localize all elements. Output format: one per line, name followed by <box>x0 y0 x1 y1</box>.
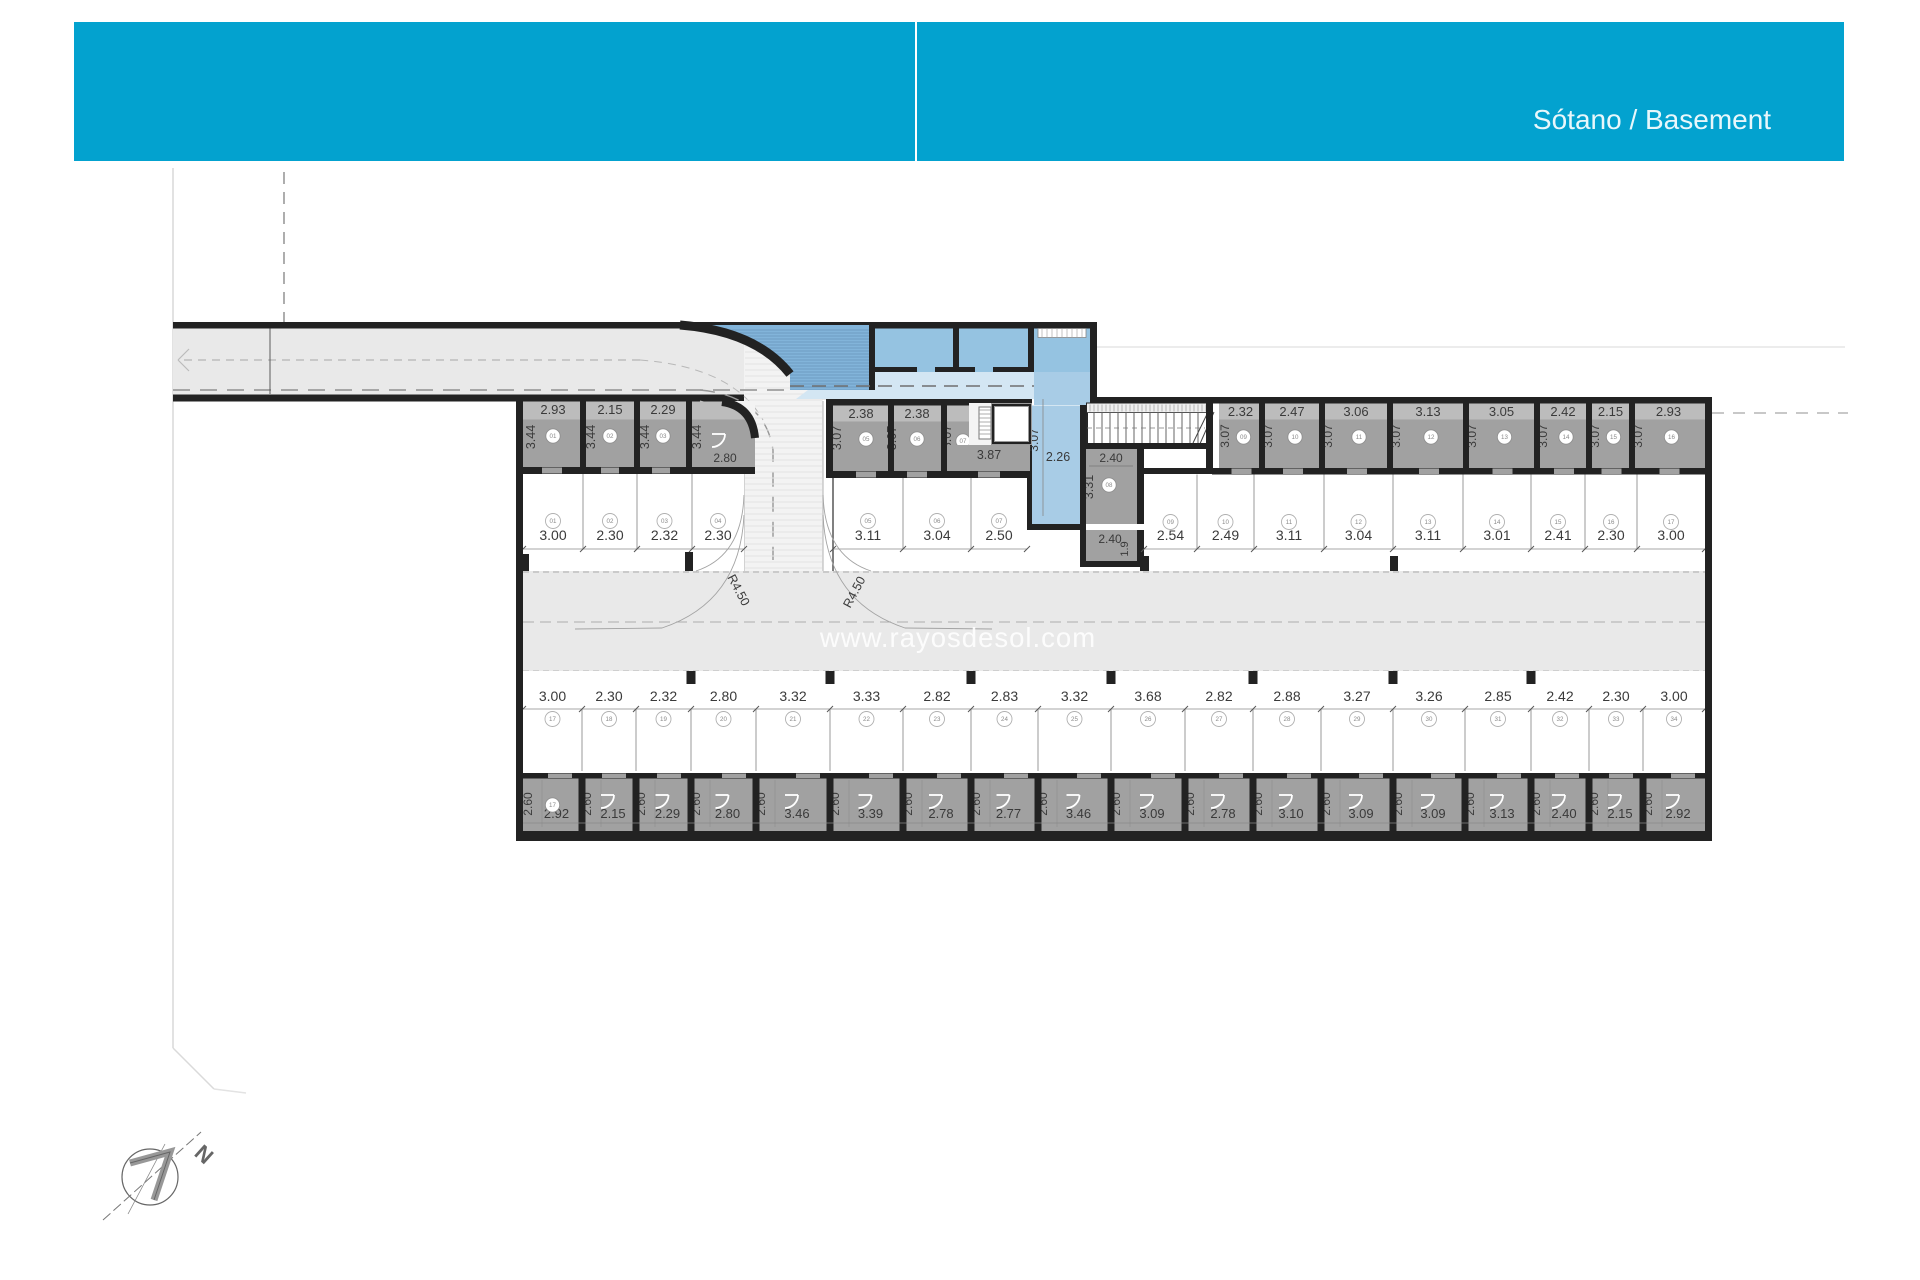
svg-text:2.49: 2.49 <box>1212 527 1239 543</box>
svg-text:03: 03 <box>661 518 668 525</box>
svg-text:3.05: 3.05 <box>1489 404 1514 419</box>
svg-text:25: 25 <box>1071 716 1078 723</box>
svg-text:2.54: 2.54 <box>1157 527 1184 543</box>
svg-text:3.04: 3.04 <box>1345 527 1372 543</box>
svg-text:15: 15 <box>1610 434 1617 441</box>
svg-text:12: 12 <box>1428 434 1435 441</box>
svg-text:2.42: 2.42 <box>1550 404 1575 419</box>
svg-text:2.50: 2.50 <box>985 527 1012 543</box>
svg-text:2.38: 2.38 <box>848 406 873 421</box>
svg-text:2.30: 2.30 <box>704 527 731 543</box>
svg-text:14: 14 <box>1563 434 1570 441</box>
svg-text:17: 17 <box>549 802 556 809</box>
svg-text:04: 04 <box>715 518 722 525</box>
svg-text:34: 34 <box>1671 716 1678 723</box>
svg-text:3.11: 3.11 <box>1415 527 1441 543</box>
svg-text:22: 22 <box>863 716 870 723</box>
svg-text:3.00: 3.00 <box>539 688 566 704</box>
svg-text:3.44: 3.44 <box>690 425 704 449</box>
svg-text:26: 26 <box>1145 716 1152 723</box>
svg-text:2.32: 2.32 <box>1228 404 1253 419</box>
svg-text:2.15: 2.15 <box>1598 404 1623 419</box>
svg-text:07: 07 <box>996 518 1003 525</box>
svg-text:3.87: 3.87 <box>977 448 1001 462</box>
svg-text:2.82: 2.82 <box>923 688 950 704</box>
svg-text:13: 13 <box>1425 519 1432 526</box>
svg-text:05: 05 <box>863 436 870 443</box>
svg-text:08: 08 <box>1106 482 1113 489</box>
svg-text:11: 11 <box>1286 519 1293 526</box>
svg-text:16: 16 <box>1668 434 1675 441</box>
svg-text:Sótano / Basement: Sótano / Basement <box>1533 104 1771 135</box>
svg-text:20: 20 <box>720 716 727 723</box>
svg-text:2.80: 2.80 <box>713 451 737 465</box>
svg-text:3.32: 3.32 <box>1061 688 1088 704</box>
svg-text:19: 19 <box>660 716 667 723</box>
svg-text:2.42: 2.42 <box>1546 688 1573 704</box>
svg-text:14: 14 <box>1494 519 1501 526</box>
svg-text:2.30: 2.30 <box>1597 527 1624 543</box>
svg-text:2.30: 2.30 <box>596 527 623 543</box>
svg-text:02: 02 <box>607 518 614 525</box>
svg-text:3.44: 3.44 <box>638 425 652 449</box>
svg-text:2.30: 2.30 <box>1602 688 1629 704</box>
svg-text:2.85: 2.85 <box>1484 688 1511 704</box>
svg-text:09: 09 <box>1240 434 1247 441</box>
svg-text:3.11: 3.11 <box>855 527 881 543</box>
svg-text:21: 21 <box>790 716 797 723</box>
svg-text:2.40: 2.40 <box>1099 451 1123 465</box>
svg-text:3.68: 3.68 <box>1134 688 1161 704</box>
svg-text:2.83: 2.83 <box>991 688 1018 704</box>
svg-text:2.15: 2.15 <box>597 402 622 417</box>
svg-text:3.32: 3.32 <box>779 688 806 704</box>
svg-text:3.26: 3.26 <box>1415 688 1442 704</box>
svg-text:15: 15 <box>1555 519 1562 526</box>
svg-text:28: 28 <box>1284 716 1291 723</box>
svg-text:3.11: 3.11 <box>1276 527 1302 543</box>
svg-text:30: 30 <box>1426 716 1433 723</box>
svg-text:3.44: 3.44 <box>584 425 598 449</box>
svg-text:3.01: 3.01 <box>1483 527 1510 543</box>
svg-text:2.29: 2.29 <box>650 402 675 417</box>
svg-text:32: 32 <box>1557 716 1564 723</box>
svg-text:3.07: 3.07 <box>1218 424 1232 448</box>
svg-text:1.9: 1.9 <box>1119 541 1131 556</box>
svg-text:2.41: 2.41 <box>1544 527 1571 543</box>
svg-text:01: 01 <box>550 518 557 525</box>
svg-text:2.82: 2.82 <box>1205 688 1232 704</box>
svg-text:23: 23 <box>934 716 941 723</box>
svg-text:2.93: 2.93 <box>540 402 565 417</box>
svg-text:2.88: 2.88 <box>1273 688 1300 704</box>
svg-text:24: 24 <box>1001 716 1008 723</box>
svg-text:06: 06 <box>914 436 921 443</box>
svg-text:2.47: 2.47 <box>1279 404 1304 419</box>
svg-text:02: 02 <box>607 433 614 440</box>
svg-text:29: 29 <box>1354 716 1361 723</box>
svg-text:33: 33 <box>1613 716 1620 723</box>
svg-text:3.04: 3.04 <box>923 527 950 543</box>
svg-text:31: 31 <box>1495 716 1502 723</box>
svg-text:11: 11 <box>1356 434 1363 441</box>
svg-text:3.00: 3.00 <box>539 527 566 543</box>
svg-text:01: 01 <box>550 433 557 440</box>
svg-text:3.44: 3.44 <box>524 425 538 449</box>
svg-text:3.13: 3.13 <box>1415 404 1440 419</box>
svg-text:05: 05 <box>865 518 872 525</box>
svg-text:17: 17 <box>549 716 556 723</box>
svg-text:09: 09 <box>1167 519 1174 526</box>
svg-text:2.32: 2.32 <box>651 527 678 543</box>
svg-text:N: N <box>190 1140 219 1169</box>
svg-text:2.80: 2.80 <box>710 688 737 704</box>
svg-text:27: 27 <box>1216 716 1223 723</box>
svg-text:2.60: 2.60 <box>521 792 535 816</box>
svg-text:06: 06 <box>934 518 941 525</box>
svg-text:2.32: 2.32 <box>650 688 677 704</box>
svg-text:3.00: 3.00 <box>1660 688 1687 704</box>
svg-text:17: 17 <box>1668 519 1675 526</box>
svg-text:2.26: 2.26 <box>1046 450 1070 464</box>
svg-text:07: 07 <box>960 438 967 445</box>
svg-text:12: 12 <box>1355 519 1362 526</box>
svg-text:2.30: 2.30 <box>595 688 622 704</box>
svg-text:10: 10 <box>1292 434 1299 441</box>
svg-text:www.rayosdesol.com: www.rayosdesol.com <box>819 622 1096 653</box>
svg-text:3.33: 3.33 <box>853 688 880 704</box>
svg-text:2.38: 2.38 <box>904 406 929 421</box>
svg-text:3.06: 3.06 <box>1343 404 1368 419</box>
svg-text:03: 03 <box>660 433 667 440</box>
svg-text:3.27: 3.27 <box>1343 688 1370 704</box>
svg-text:18: 18 <box>606 716 613 723</box>
svg-text:10: 10 <box>1222 519 1229 526</box>
svg-text:13: 13 <box>1501 434 1508 441</box>
svg-text:2.93: 2.93 <box>1656 404 1681 419</box>
svg-text:16: 16 <box>1608 519 1615 526</box>
svg-text:3.00: 3.00 <box>1657 527 1684 543</box>
